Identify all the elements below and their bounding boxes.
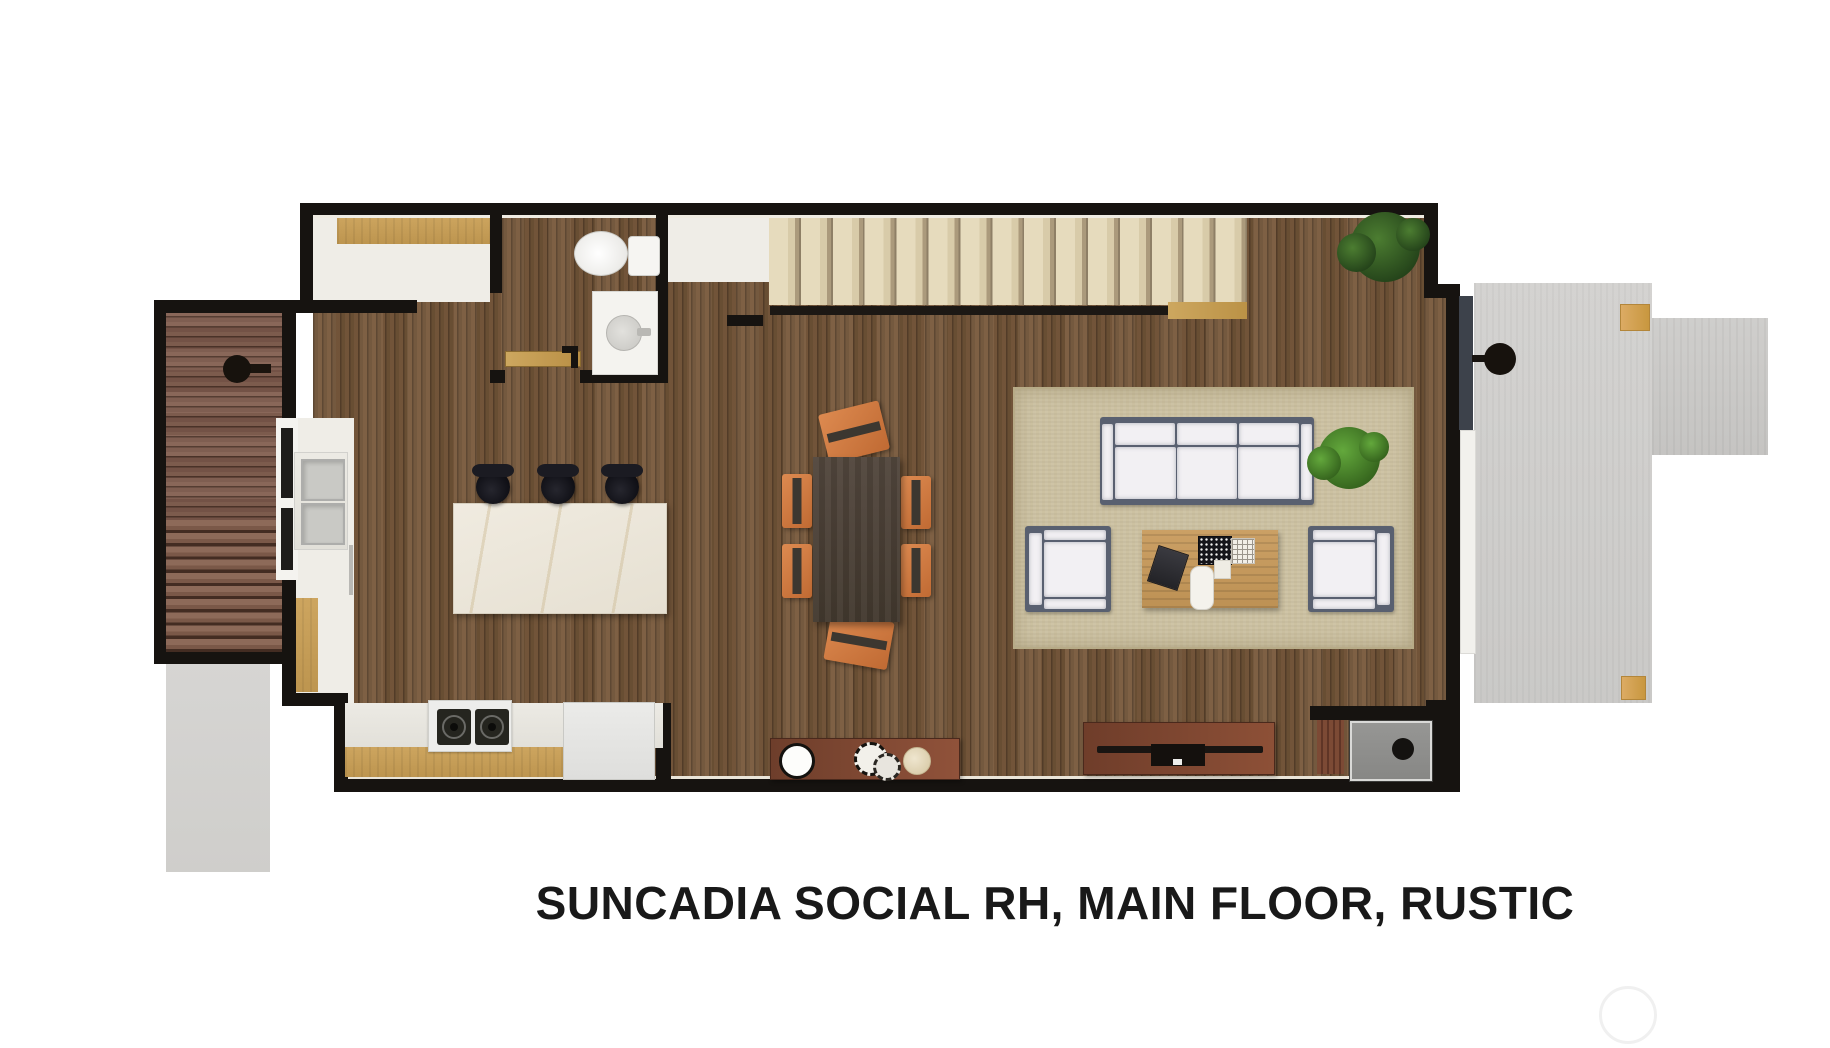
wall-bottom [334, 779, 1460, 792]
kitchen-sink-counter [294, 452, 348, 550]
game-board-light [1231, 538, 1255, 564]
exterior-cover-bottom-left [300, 706, 334, 780]
hall-closet [668, 216, 769, 282]
plate-cream [903, 747, 931, 775]
coaster [1214, 560, 1231, 579]
range-stove [428, 700, 512, 752]
potted-plant-corner [1350, 212, 1420, 282]
refrigerator [563, 702, 655, 780]
patio-door-panel [1459, 296, 1473, 430]
wall-bathroom-left [490, 203, 502, 293]
armchair-right-back [1377, 533, 1390, 605]
bar-stool-2 [541, 470, 575, 504]
concrete-patio-right-extension [1652, 318, 1768, 455]
plan-title: SUNCADIA SOCIAL RH, MAIN FLOOR, RUSTIC [395, 876, 1715, 930]
armchair-left-arm-top [1044, 530, 1106, 540]
armchair-left-arm-bottom [1044, 599, 1106, 609]
plate-patterned-small [873, 753, 901, 781]
potted-plant-living [1318, 427, 1380, 489]
living-room-window-sill [1460, 430, 1476, 654]
dining-chair-right-2 [901, 544, 931, 597]
armchair-right [1308, 526, 1394, 612]
staircase [769, 216, 1247, 305]
plate-white [779, 743, 815, 779]
sofa-arm-left [1102, 424, 1113, 500]
dining-chair-left-1 [782, 474, 812, 528]
bar-stool-3 [605, 470, 639, 504]
bathroom-faucet [637, 328, 651, 336]
deck-grill-icon [223, 355, 251, 383]
deck-door-glass-top [281, 428, 293, 498]
dining-table [813, 457, 900, 622]
remote-tray [1190, 566, 1214, 610]
wall-right [1446, 284, 1460, 792]
bathroom-door-panel [505, 351, 581, 367]
deck-door-glass-bottom [281, 508, 293, 570]
armchair-left-seat [1044, 542, 1106, 597]
stair-landing [1168, 302, 1247, 319]
fireplace [1350, 721, 1432, 781]
bathroom-vanity [592, 291, 658, 375]
sofa [1100, 417, 1314, 505]
patio-wood-block-top [1620, 304, 1650, 331]
corner-wood-cabinet [1317, 720, 1344, 774]
toilet-bowl [574, 231, 628, 276]
deck-frame-bottom [154, 652, 298, 664]
tv-console [1083, 722, 1275, 775]
kitchen-sink-basin-1 [301, 459, 345, 501]
patio-grill-icon [1484, 343, 1516, 375]
armchair-right-arm-bottom [1313, 599, 1375, 609]
wall-bottom-right-stub [1310, 706, 1434, 720]
kitchen-island [453, 503, 667, 614]
armchair-left [1025, 526, 1111, 612]
kitchen-sink-basin-2 [301, 503, 345, 545]
wall-top-hairline [313, 215, 1424, 218]
stair-stringer [770, 306, 1168, 315]
bathroom-door-hinge-2 [571, 346, 578, 368]
wall-bathroom-bottom-a [490, 370, 505, 383]
dishwasher-handle [349, 545, 353, 595]
laptop [1147, 545, 1189, 591]
dining-chair-right-1 [901, 476, 931, 529]
wall-left-top [300, 203, 313, 313]
entry-closet-shelf [337, 216, 490, 244]
sofa-seat-cushions [1115, 447, 1299, 499]
stove-burner-left [437, 709, 471, 745]
stove-burner-right [475, 709, 509, 745]
watermark-circle-icon [1599, 986, 1657, 1044]
patio-wood-block-bottom [1621, 676, 1646, 700]
armchair-right-seat [1313, 542, 1375, 597]
armchair-right-arm-top [1313, 530, 1375, 540]
concrete-walkway-left [166, 660, 270, 872]
deck-frame-left [154, 300, 166, 664]
toilet-tank [628, 236, 660, 276]
floor-plan: SUNCADIA SOCIAL RH, MAIN FLOOR, RUSTIC [0, 0, 1830, 1048]
bar-stool-1 [476, 470, 510, 504]
coffee-table [1142, 530, 1278, 608]
understair-door-mark [727, 315, 763, 326]
fireplace-flue-icon [1392, 738, 1414, 760]
tv-media-light [1173, 759, 1182, 765]
armchair-left-back [1029, 533, 1042, 605]
dining-chair-left-2 [782, 544, 812, 598]
sofa-back-cushions [1115, 423, 1299, 445]
